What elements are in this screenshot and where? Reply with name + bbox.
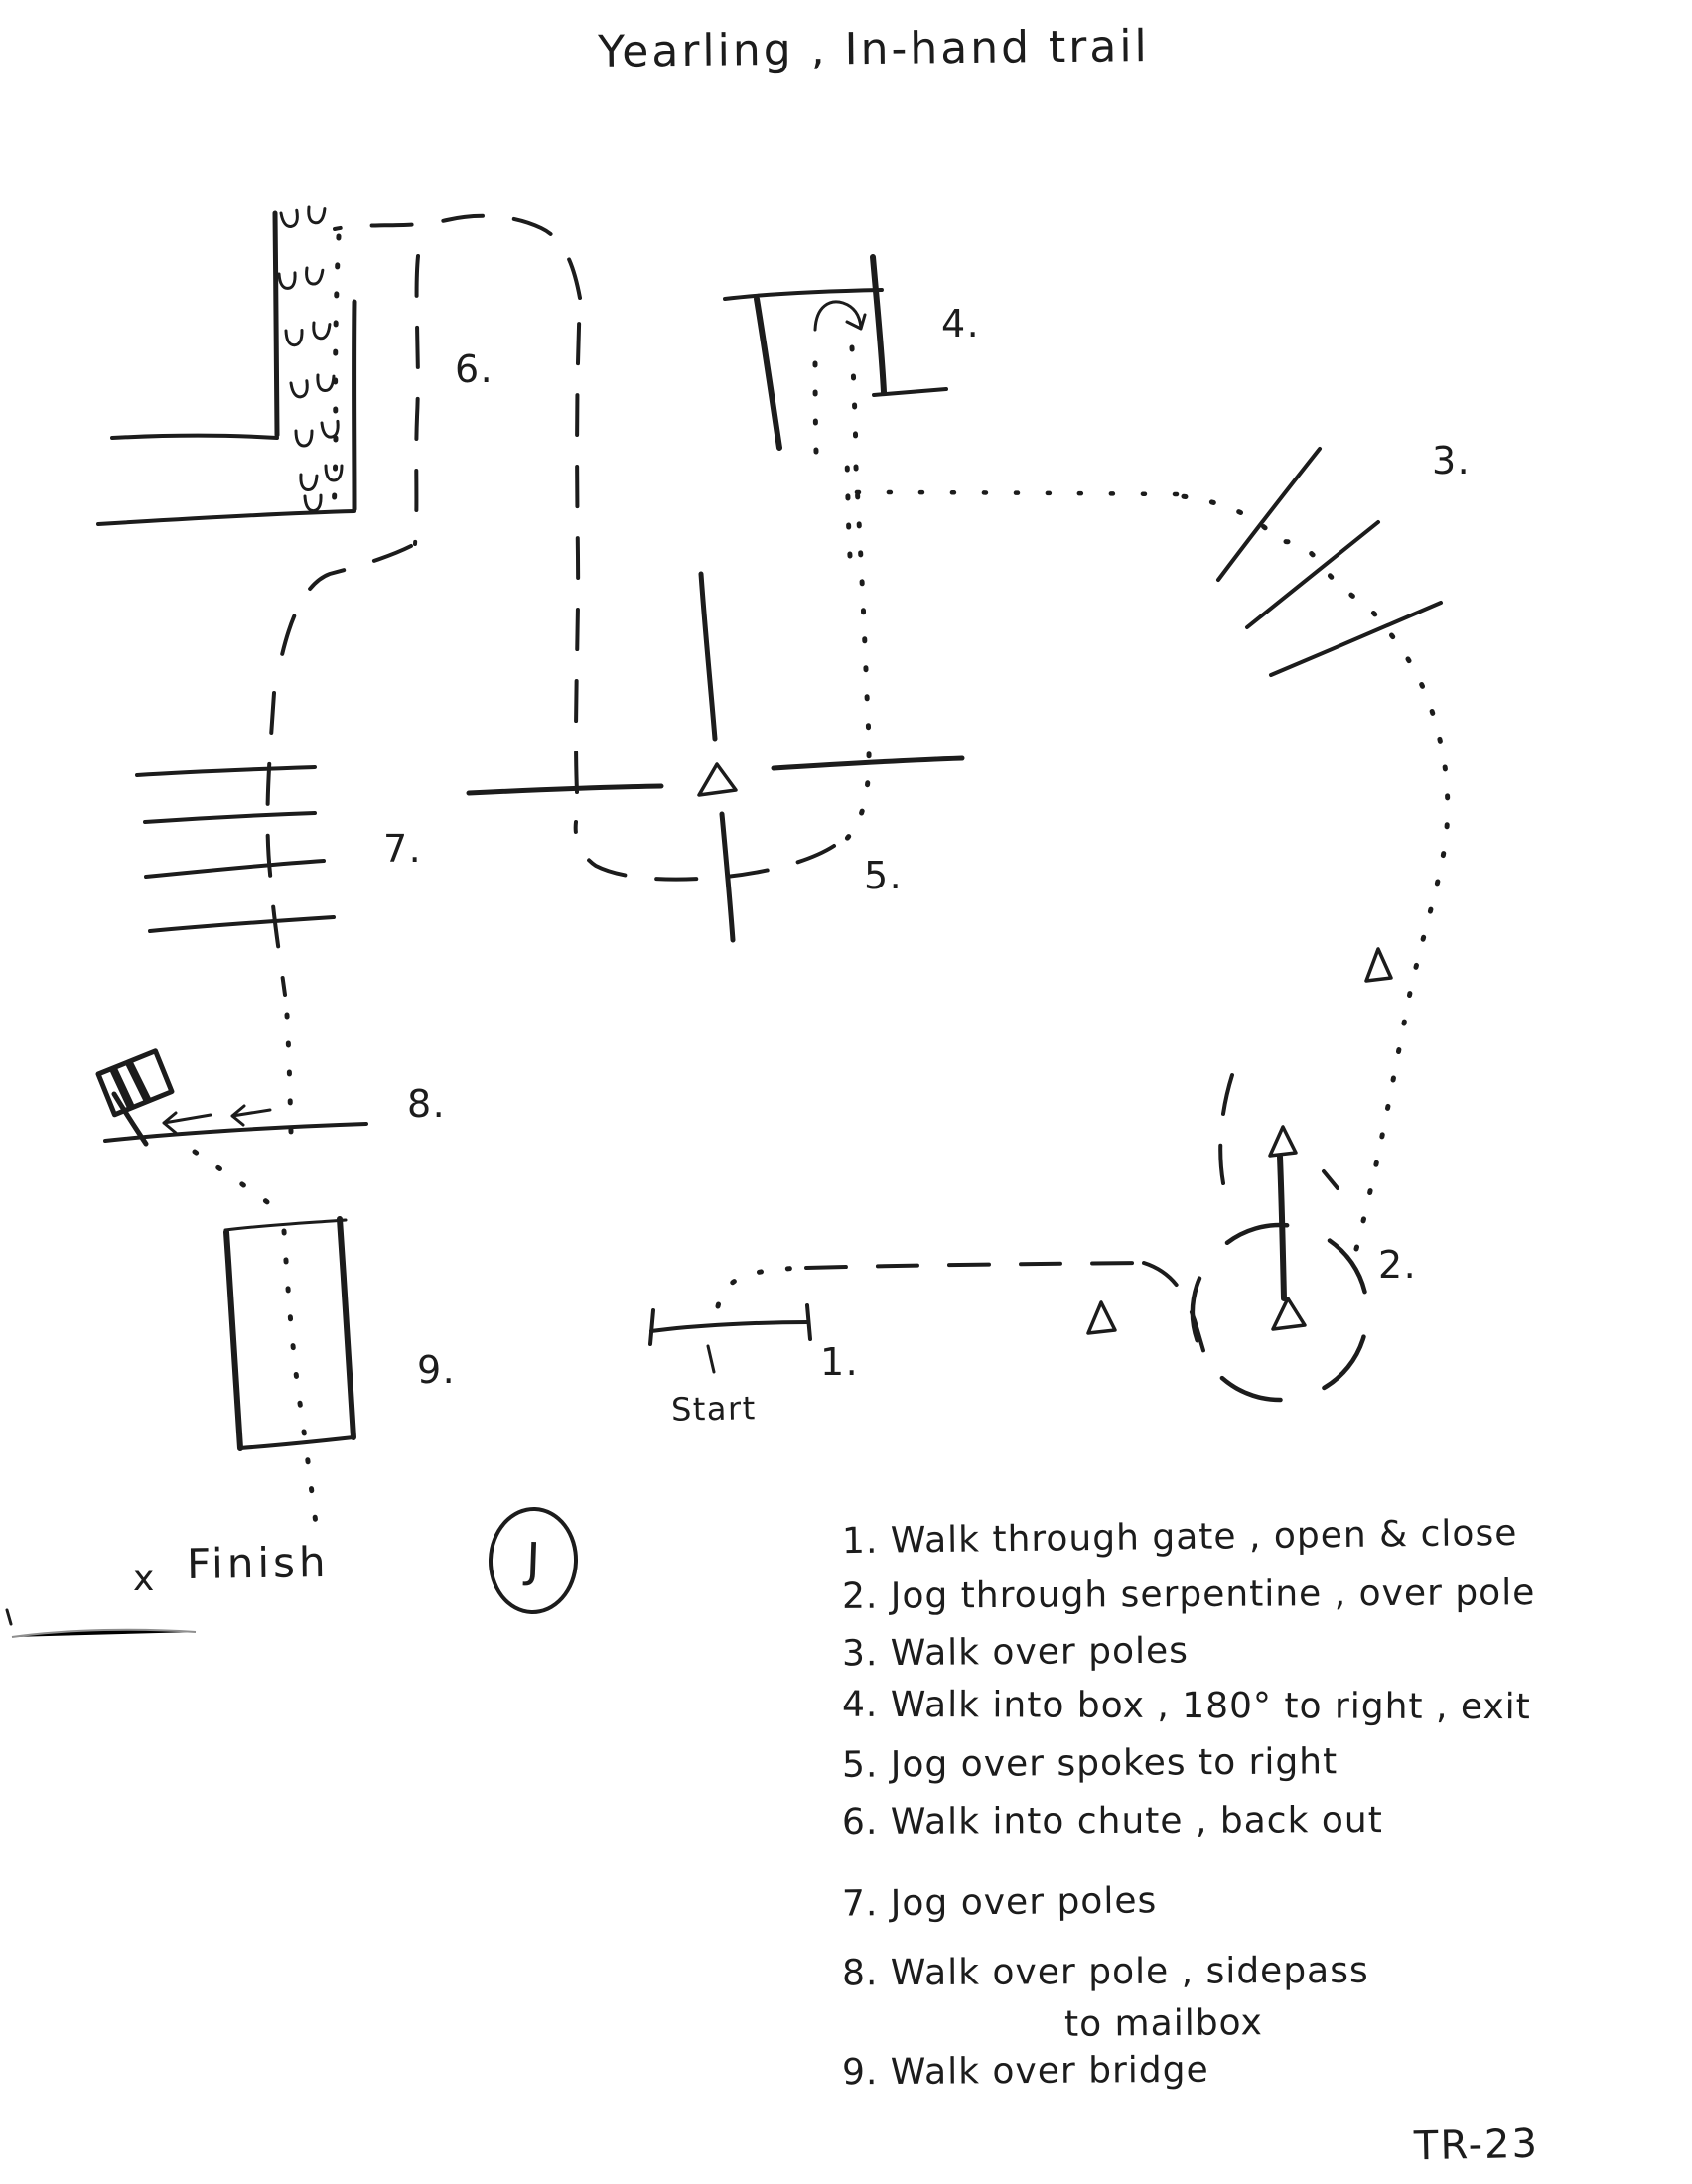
walk-path-into-box <box>815 342 816 452</box>
obstacle-9-bridge <box>225 1219 353 1448</box>
jog-path-to-serpentine <box>806 1263 1144 1268</box>
obstacle-label-8: 8. <box>407 1082 446 1126</box>
legend-line-8-continued: to mailbox <box>1064 2002 1263 2045</box>
jog-path-top-curve <box>335 216 580 298</box>
course-paths <box>195 216 1448 1531</box>
cone-icon <box>1273 1298 1305 1329</box>
jog-path-under-spokes <box>576 822 834 880</box>
scanned-trail-course-sheet: Yearling , In-hand trail 1. 2. 3. 4. 5. … <box>0 0 1692 2184</box>
finish-x-mark: x <box>133 1559 156 1599</box>
walk-path-out-of-box <box>852 347 856 452</box>
obstacle-7-poles <box>137 767 334 931</box>
180-degree-turn-arrow-icon <box>815 302 865 330</box>
hoofprint-marks <box>279 207 342 511</box>
obstacle-label-2: 2. <box>1378 1243 1417 1287</box>
obstacle-label-9: 9. <box>417 1348 456 1392</box>
legend-line-8: 8. Walk over pole , sidepass <box>842 1951 1369 1994</box>
legend-line-1: 1. Walk through gate , open & close <box>842 1513 1518 1562</box>
cone-icon <box>1366 949 1391 981</box>
legend-line-3: 3. Walk over poles <box>842 1630 1189 1674</box>
finish-label: Finish <box>187 1538 330 1588</box>
obstacle-1-gate <box>650 1305 810 1372</box>
start-label: Start <box>671 1389 757 1428</box>
walk-path-up-to-box <box>847 459 850 556</box>
walk-path-to-poles-3 <box>1182 496 1448 1249</box>
obstacle-label-7: 7. <box>383 827 422 871</box>
cone-icon <box>1270 1127 1296 1156</box>
obstacle-label-4: 4. <box>941 302 980 345</box>
mailbox-icon <box>98 1051 172 1115</box>
obstacle-label-5: 5. <box>864 854 903 897</box>
legend-line-4: 4. Walk into box , 180° to right , exit <box>842 1685 1531 1727</box>
walk-path-4-to-5 <box>835 467 869 849</box>
course-code: TR-23 <box>1414 2121 1540 2170</box>
walk-path-to-finish <box>284 1231 317 1531</box>
legend-line-2: 2. Jog through serpentine , over pole <box>842 1572 1536 1617</box>
obstacle-6-chute <box>98 207 354 524</box>
walk-path-3-to-4 <box>852 492 1177 494</box>
page-title: Yearling , In-hand trail <box>536 20 1211 77</box>
course-map-drawing <box>0 0 1692 2184</box>
legend-line-9: 9. Walk over bridge <box>842 2050 1209 2094</box>
legend-line-7: 7. Jog over poles <box>842 1880 1158 1924</box>
jog-path-mid-vertical <box>576 300 580 792</box>
walk-path-to-bridge <box>195 1152 282 1213</box>
walk-path-from-start <box>718 1268 800 1306</box>
jog-path-through-poles-7 <box>267 693 285 995</box>
stray-pencil-mark <box>7 1610 196 1637</box>
obstacle-4-box <box>725 257 946 452</box>
legend-line-5: 5. Jog over spokes to right <box>842 1741 1338 1785</box>
obstacle-label-6: 6. <box>455 347 493 391</box>
obstacle-label-1: 1. <box>820 1340 859 1384</box>
legend-line-6: 6. Walk into chute , back out <box>842 1800 1383 1843</box>
walk-path-in-chute <box>334 236 339 511</box>
obstacle-label-3: 3. <box>1432 439 1471 482</box>
walk-path-over-pole-8 <box>287 1015 291 1132</box>
obstacle-3-poles <box>1218 449 1441 675</box>
jog-path-to-poles-7 <box>276 546 411 685</box>
judge-letter: J <box>525 1533 541 1588</box>
jog-path-second-vertical <box>415 256 418 544</box>
cone-icon <box>699 764 736 795</box>
obstacle-8-sidepass <box>98 1051 366 1144</box>
cone-icon <box>1088 1302 1115 1333</box>
